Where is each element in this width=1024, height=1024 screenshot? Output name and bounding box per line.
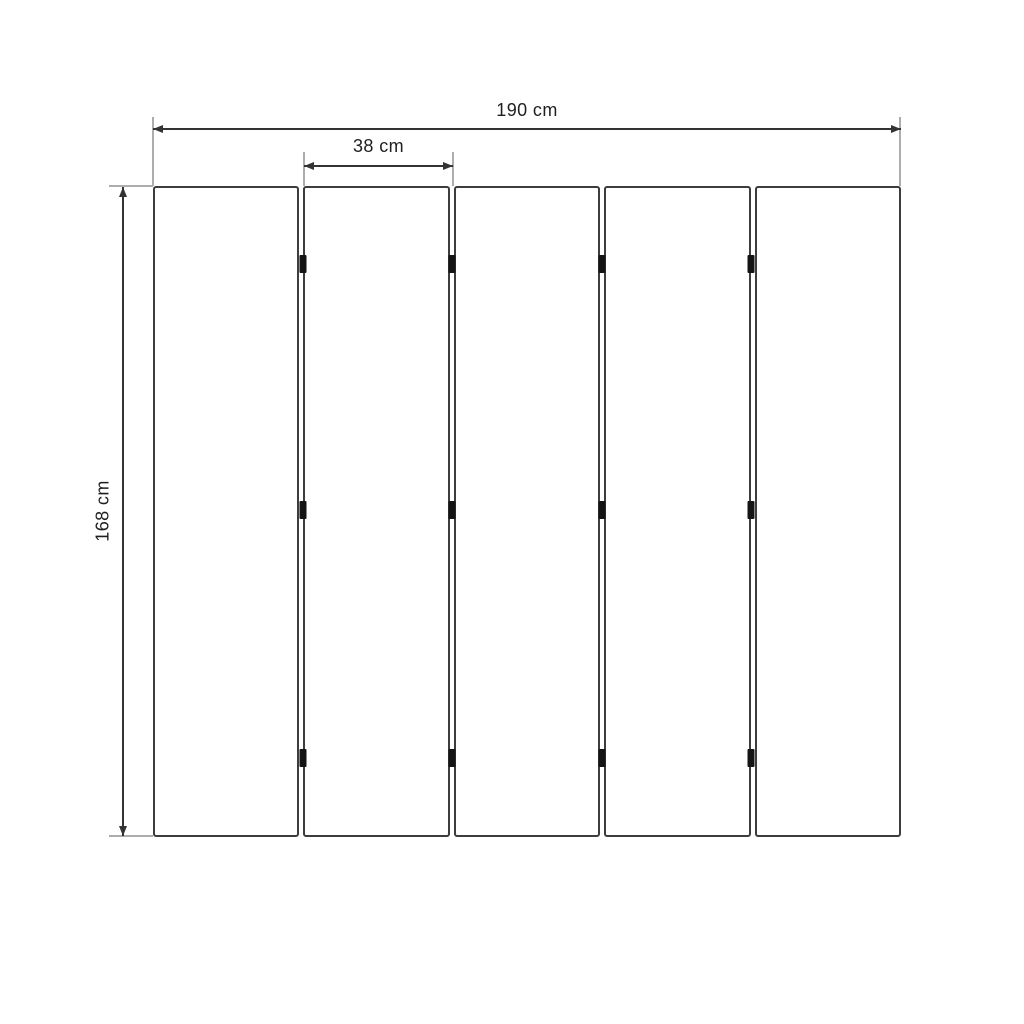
hinge-icon [748, 255, 755, 273]
panel-width-dimension-line [304, 165, 453, 167]
panel-group [153, 186, 901, 837]
panel-2 [303, 186, 449, 837]
hinge-icon [748, 501, 755, 519]
hinge-icon [299, 749, 306, 767]
total-width-dimension-line [153, 128, 901, 130]
hinge-icon [598, 749, 605, 767]
hinge-icon [299, 501, 306, 519]
total-width-label: 190 cm [153, 100, 901, 121]
height-dimension-line [122, 187, 124, 836]
panel-3 [454, 186, 600, 837]
hinge-icon [299, 255, 306, 273]
hinge-icon [598, 255, 605, 273]
extension-line-height-top [109, 185, 153, 187]
panel-5 [755, 186, 901, 837]
hinge-icon [598, 501, 605, 519]
dimension-diagram: 190 cm 38 cm 168 cm [0, 0, 1024, 1024]
hinge-icon [748, 749, 755, 767]
panel-1 [153, 186, 299, 837]
height-label: 168 cm [93, 480, 114, 541]
panel-width-label: 38 cm [304, 136, 453, 157]
hinge-icon [449, 749, 456, 767]
hinge-icon [449, 255, 456, 273]
panel-4 [604, 186, 750, 837]
hinge-icon [449, 501, 456, 519]
extension-line-height-bottom [109, 835, 153, 837]
